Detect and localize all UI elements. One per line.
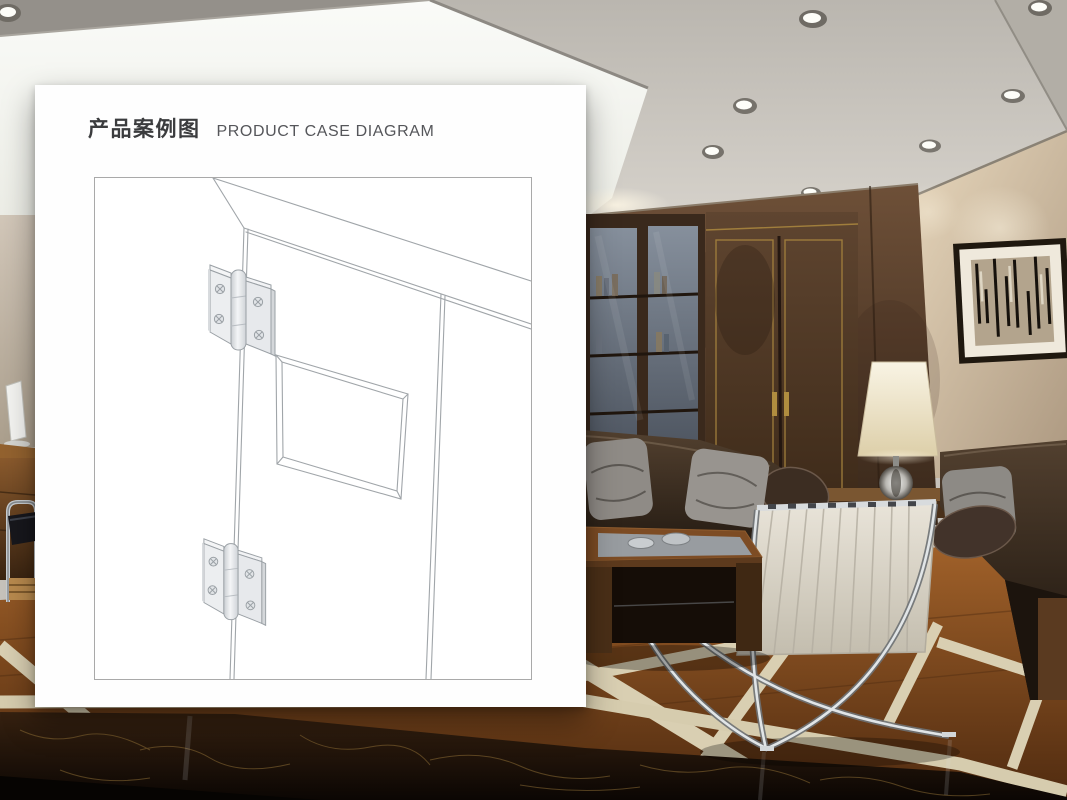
door-top-edge bbox=[244, 228, 531, 329]
page: 产品案例图 PRODUCT CASE DIAGRAM bbox=[0, 0, 1067, 800]
bottom-hinge bbox=[202, 539, 266, 625]
door-lock-stile bbox=[426, 294, 445, 679]
recessed-light bbox=[1028, 0, 1052, 16]
recessed-light bbox=[799, 10, 827, 28]
table-leg bbox=[586, 567, 612, 653]
product-case-card: 产品案例图 PRODUCT CASE DIAGRAM bbox=[35, 85, 586, 707]
diagram-frame bbox=[94, 177, 532, 680]
coffee-table bbox=[574, 527, 770, 671]
recessed-light bbox=[702, 145, 724, 159]
gray-pillow bbox=[582, 437, 654, 521]
door-handle bbox=[772, 392, 777, 416]
card-title-en: PRODUCT CASE DIAGRAM bbox=[217, 123, 435, 141]
recessed-light bbox=[1001, 89, 1025, 103]
door-hinge-diagram bbox=[95, 178, 531, 679]
sofa-wood-side bbox=[1038, 598, 1067, 700]
wall-art bbox=[953, 238, 1067, 364]
table-leg bbox=[736, 563, 762, 651]
reception-desk bbox=[0, 444, 35, 580]
vision-panel bbox=[276, 355, 408, 499]
recessed-light bbox=[919, 140, 941, 153]
top-hinge bbox=[208, 265, 275, 356]
card-title-zh: 产品案例图 bbox=[88, 113, 201, 143]
recessed-light bbox=[733, 98, 757, 114]
wall-top-edge bbox=[213, 178, 531, 281]
card-title: 产品案例图 PRODUCT CASE DIAGRAM bbox=[88, 113, 434, 143]
door-handle bbox=[784, 392, 789, 416]
